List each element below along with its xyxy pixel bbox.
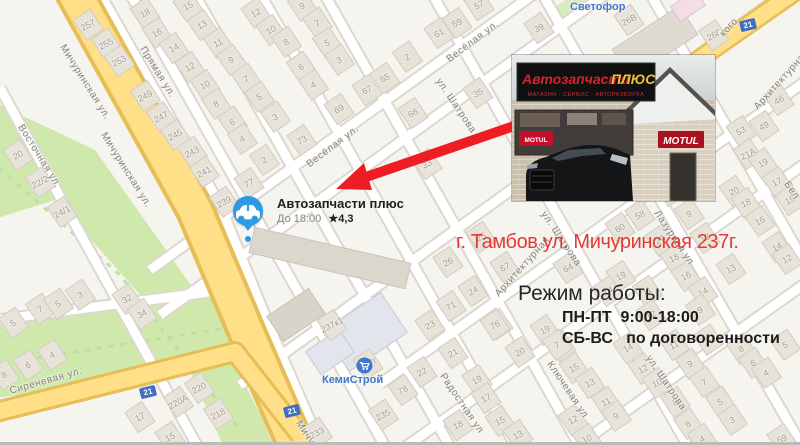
- poi-svetofor[interactable]: Светофор: [570, 1, 625, 13]
- motul-wall-text: MOTUL: [663, 136, 699, 147]
- marker-rating: ★4,3: [328, 213, 353, 225]
- poi-kemistroy[interactable]: КемиСтрой: [322, 374, 383, 386]
- motul-banner-text: MOTUL: [524, 137, 547, 144]
- car-marker-icon[interactable]: [233, 196, 263, 226]
- car-icon: [233, 196, 263, 226]
- store-sign-subtitle: МАГАЗИН · СЕРВИС · АВТОРАЗБОРКА: [528, 92, 645, 98]
- marker-label[interactable]: Автозапчасти плюс До 18:00 ★4,3: [277, 196, 404, 225]
- photo-door: [670, 153, 696, 201]
- marker-anchor-dot: [245, 236, 251, 242]
- store-sign-plus: ПЛЮС: [611, 71, 656, 87]
- place-marker[interactable]: Автозапчасти плюс До 18:00 ★4,3: [233, 196, 263, 226]
- storefront-photo: MOTUL Автозапчасти ПЛЮС МАГАЗИН · СЕРВИС…: [512, 55, 715, 201]
- marker-title[interactable]: Автозапчасти плюс: [277, 196, 404, 211]
- poi-kemistroy-label: КемиСтрой: [322, 374, 383, 386]
- schedule-weekend: СБ-ВС по договоренности: [562, 330, 780, 348]
- shopping-cart-icon: [356, 357, 373, 374]
- marker-subtitle: До 18:00 ★4,3: [277, 212, 404, 225]
- address-annotation: г. Тамбов ул. Мичуринская 237г.: [456, 231, 738, 254]
- schedule-weekdays: ПН-ПТ 9:00-18:00: [562, 309, 699, 327]
- schedule-title: Режим работы:: [518, 282, 666, 306]
- marker-hours: До 18:00: [277, 213, 321, 225]
- map-canvas[interactable]: 2572552532492472452432412392022/224/1181…: [0, 0, 800, 445]
